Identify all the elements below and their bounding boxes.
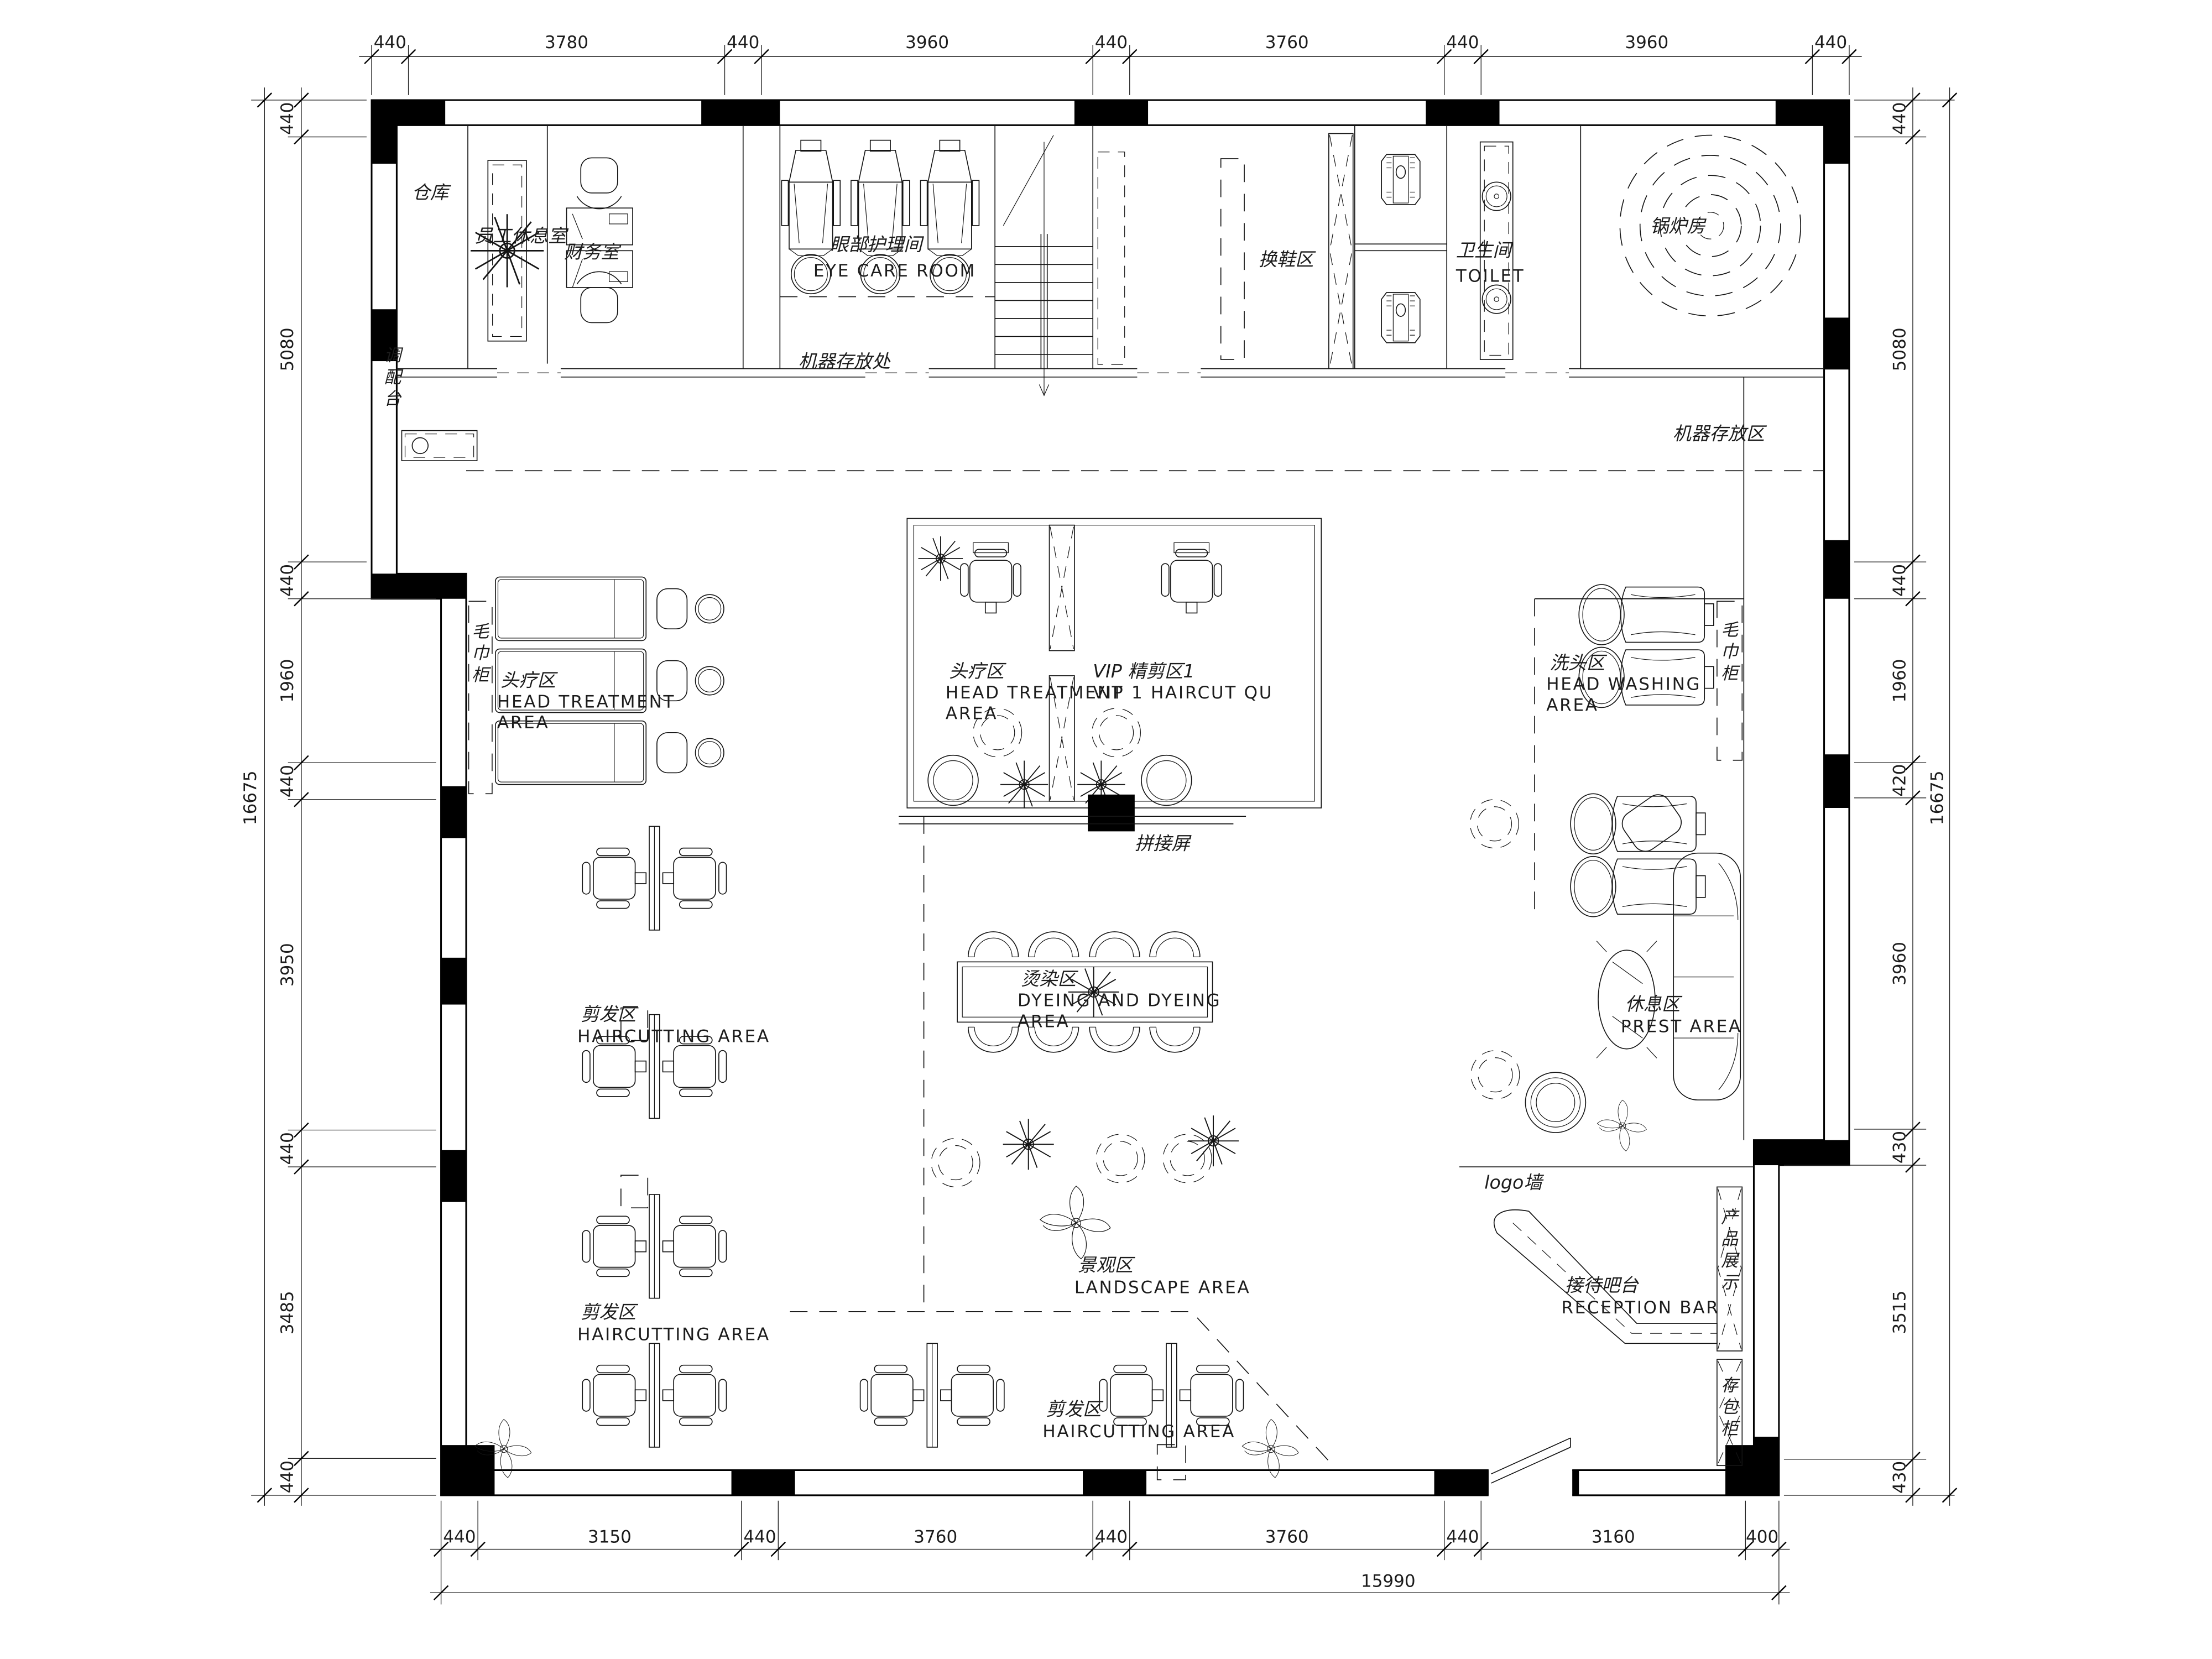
office-chair-icon bbox=[577, 272, 621, 322]
plan-group: 仓库 员工休息室 财务室 调配台 眼部护理间 EYE CARE ROOM 机器存… bbox=[241, 33, 1957, 1604]
tree-icon bbox=[1242, 1420, 1298, 1478]
head-treatment-center-cn: 头疗区 bbox=[949, 660, 1007, 682]
hatched-divider bbox=[1050, 525, 1074, 801]
dim-top-3: 3960 bbox=[905, 33, 949, 53]
dim-bottom-8: 400 bbox=[1746, 1527, 1778, 1547]
head-washing-label-en1: HEAD WASHING bbox=[1546, 675, 1701, 695]
dim-right-7: 3515 bbox=[1890, 1291, 1910, 1334]
dim-bottom-4: 440 bbox=[1095, 1527, 1128, 1547]
flower-plant-icon bbox=[1040, 1186, 1110, 1259]
dyeing-label-en1: DYEING AND DYEING bbox=[1018, 991, 1221, 1011]
wash-unit-icon bbox=[1571, 794, 1705, 854]
styling-station bbox=[582, 1194, 726, 1298]
dyeing-label-cn: 烫染区 bbox=[1021, 968, 1079, 990]
vip-label-cn: VIP 精剪区1 bbox=[1093, 660, 1194, 682]
boiler-room: 锅炉房 bbox=[1620, 135, 1801, 316]
splice-screen-label: 拼接屏 bbox=[1135, 833, 1192, 854]
dyeing-label-en2: AREA bbox=[1018, 1011, 1070, 1031]
stool-dashed-icon bbox=[1470, 800, 1519, 848]
dim-bottom-total: 15990 bbox=[1361, 1572, 1416, 1592]
rest-area: 休息区 PREST AREA bbox=[1470, 790, 1742, 1151]
office-chair-icon bbox=[577, 158, 621, 208]
door-openings bbox=[497, 364, 1569, 382]
dim-bottom-0: 440 bbox=[443, 1527, 476, 1547]
machine-storage-spot-label: 机器存放处 bbox=[799, 351, 891, 372]
head-washing-label-cn: 洗头区 bbox=[1550, 652, 1608, 674]
corner-stool bbox=[928, 755, 978, 806]
chair-icon bbox=[1089, 1027, 1140, 1052]
dim-left-7: 3485 bbox=[278, 1291, 298, 1334]
dim-top-2: 440 bbox=[727, 33, 759, 53]
shoe-change-label: 换鞋区 bbox=[1259, 249, 1317, 270]
dim-top-4: 440 bbox=[1095, 33, 1128, 53]
warehouse-room: 仓库 bbox=[412, 182, 451, 204]
staff-lounge-room: 员工休息室 bbox=[471, 160, 569, 341]
towel-cabinet-label: 毛巾柜 bbox=[472, 622, 492, 685]
squat-toilet-icon bbox=[1381, 293, 1420, 343]
dim-right-8: 430 bbox=[1890, 1461, 1910, 1494]
dim-top-7: 3960 bbox=[1625, 33, 1668, 53]
haircutting-label-en: HAIRCUTTING AREA bbox=[1042, 1422, 1235, 1442]
chair-icon bbox=[1150, 932, 1200, 957]
reception-label-cn: 接待吧台 bbox=[1565, 1275, 1640, 1296]
dim-left-total: 16675 bbox=[241, 771, 260, 826]
dim-left-8: 440 bbox=[278, 1460, 298, 1493]
chair-icon bbox=[968, 1027, 1019, 1052]
landscape-area: 景观区 LANDSCAPE AREA bbox=[931, 1115, 1250, 1297]
dim-right-6: 430 bbox=[1890, 1131, 1910, 1164]
dimension-top: 440 3780 440 3960 440 3760 440 3960 440 bbox=[359, 33, 1861, 95]
shoe-change-area: 换鞋区 bbox=[1221, 134, 1353, 369]
column-dashed bbox=[621, 1175, 648, 1208]
eye-care-label-cn: 眼部护理间 bbox=[830, 233, 924, 255]
head-washing-label-en2: AREA bbox=[1546, 695, 1598, 715]
corner-stool bbox=[1141, 755, 1192, 806]
dim-bottom-2: 440 bbox=[743, 1527, 776, 1547]
dim-left-5: 3950 bbox=[278, 943, 298, 987]
squat-toilet-icon bbox=[1381, 154, 1420, 205]
column-dashed bbox=[1157, 1444, 1186, 1480]
vip-label-en: VIP 1 HAIRCUT QU bbox=[1093, 683, 1273, 703]
haircutting-label-cn: 剪发区 bbox=[1046, 1398, 1104, 1420]
head-treatment-label-en1: HEAD TREATMENT bbox=[497, 692, 675, 712]
head-washing-area: 毛巾柜 洗头区 HEAD WASHING AREA bbox=[1546, 585, 1742, 917]
basin-icon bbox=[1483, 182, 1511, 210]
plant-icon bbox=[1188, 1115, 1239, 1166]
wash-unit-icon bbox=[1579, 585, 1714, 645]
shrub-icon bbox=[931, 1139, 980, 1187]
dim-top-6: 440 bbox=[1446, 33, 1479, 53]
stool-dashed-icon bbox=[1092, 708, 1141, 757]
mixing-counter: 调配台 bbox=[384, 346, 477, 461]
dimension-left: 440 5080 440 1960 440 3950 440 3485 440 … bbox=[241, 87, 436, 1506]
dim-top-1: 3780 bbox=[545, 33, 588, 53]
mixing-counter-label: 调配台 bbox=[384, 346, 403, 409]
toilet-label-en: TOILET bbox=[1455, 266, 1525, 286]
treatment-bed-icon bbox=[495, 577, 724, 640]
dim-bottom-3: 3760 bbox=[914, 1527, 957, 1547]
rest-label-en: PREST AREA bbox=[1621, 1016, 1742, 1036]
dim-top-5: 3760 bbox=[1265, 33, 1309, 53]
styling-chair-icon bbox=[1161, 549, 1222, 613]
haircutting-label-en: HAIRCUTTING AREA bbox=[577, 1324, 770, 1344]
wash-unit-icon bbox=[1571, 857, 1705, 917]
eye-care-room: 眼部护理间 EYE CARE ROOM 机器存放处 bbox=[781, 140, 979, 373]
boiler-label: 锅炉房 bbox=[1650, 215, 1707, 237]
finance-label: 财务室 bbox=[564, 241, 622, 263]
chair-icon bbox=[968, 932, 1019, 957]
landscape-label-en: LANDSCAPE AREA bbox=[1074, 1278, 1251, 1298]
splice-screen: 拼接屏 bbox=[899, 816, 1246, 854]
styling-station bbox=[860, 1343, 1004, 1447]
haircutting-area-3: 剪发区 HAIRCUTTING AREA bbox=[860, 1343, 1244, 1480]
display-cabinet-label: 产品展示 bbox=[1721, 1207, 1740, 1292]
staircase bbox=[995, 135, 1125, 396]
eye-care-label-en: EYE CARE ROOM bbox=[813, 261, 976, 281]
dim-right-total: 16675 bbox=[1927, 771, 1947, 826]
landscape-label-cn: 景观区 bbox=[1078, 1254, 1136, 1276]
plant-icon bbox=[1003, 1119, 1054, 1170]
dim-left-4: 440 bbox=[278, 765, 298, 797]
plant-icon bbox=[1597, 1100, 1646, 1151]
round-table-icon bbox=[1525, 1072, 1585, 1133]
sofa-icon bbox=[1673, 853, 1740, 1100]
logo-wall-label: logo墙 bbox=[1484, 1171, 1544, 1193]
dyeing-area: 烫染区 DYEING AND DYEING AREA bbox=[957, 932, 1221, 1052]
center-rooms: 头疗区 HEAD TREATMENT AREA VIP 精剪区1 VIP 1 H… bbox=[907, 519, 1321, 832]
dimension-right: 440 5080 440 1960 420 3960 430 3515 430 … bbox=[1784, 87, 1957, 1506]
shoe-cabinet bbox=[1329, 134, 1353, 369]
rest-label-cn: 休息区 bbox=[1625, 993, 1683, 1015]
machine-storage-area-label: 机器存放区 bbox=[1673, 422, 1767, 444]
display-cabinet: 产品展示 bbox=[1717, 1187, 1742, 1351]
haircutting-area-2: 剪发区 HAIRCUTTING AREA bbox=[577, 1175, 770, 1447]
shrub-icon bbox=[1163, 1134, 1212, 1183]
dim-left-2: 440 bbox=[278, 564, 298, 597]
dim-bottom-1: 3150 bbox=[588, 1527, 632, 1547]
styling-chair-icon bbox=[961, 549, 1021, 613]
dim-left-1: 5080 bbox=[278, 327, 298, 371]
dim-left-0: 440 bbox=[278, 102, 298, 135]
dim-bottom-5: 3760 bbox=[1265, 1527, 1309, 1547]
basin-icon bbox=[1483, 285, 1511, 313]
reception-label-en: RECEPTION BAR bbox=[1561, 1298, 1719, 1318]
dim-top-0: 440 bbox=[374, 33, 406, 53]
head-treatment-label-en2: AREA bbox=[497, 713, 549, 733]
styling-station bbox=[582, 826, 726, 930]
head-treatment-center-en2: AREA bbox=[946, 704, 998, 724]
dim-bottom-7: 3160 bbox=[1592, 1527, 1635, 1547]
haircutting-label-cn: 剪发区 bbox=[581, 1003, 639, 1025]
stool-dashed-icon bbox=[1471, 1051, 1520, 1099]
chair-icon bbox=[1150, 1027, 1200, 1052]
dim-right-5: 3960 bbox=[1890, 942, 1910, 985]
lounge-chair-icon bbox=[1618, 790, 1686, 856]
chair-icon bbox=[1089, 932, 1140, 957]
plant-icon bbox=[919, 536, 963, 581]
dim-right-1: 5080 bbox=[1890, 327, 1910, 371]
finance-room: 财务室 bbox=[564, 158, 633, 322]
entrance-door bbox=[1482, 1438, 1579, 1498]
dim-left-3: 1960 bbox=[278, 659, 298, 703]
plant-icon bbox=[471, 214, 544, 287]
dim-bottom-6: 440 bbox=[1446, 1527, 1479, 1547]
dim-left-6: 440 bbox=[278, 1132, 298, 1165]
floor-plan-svg: 仓库 员工休息室 财务室 调配台 眼部护理间 EYE CARE ROOM 机器存… bbox=[0, 0, 2212, 1659]
styling-station bbox=[582, 1343, 726, 1447]
towel-cabinet-right-label: 毛巾柜 bbox=[1721, 620, 1741, 684]
dim-right-4: 420 bbox=[1890, 764, 1910, 796]
haircutting-label-cn: 剪发区 bbox=[581, 1301, 639, 1323]
warehouse-label: 仓库 bbox=[412, 182, 451, 204]
toilet-room: 卫生间 TOILET bbox=[1355, 142, 1525, 359]
shrub-icon bbox=[1096, 1134, 1145, 1183]
head-treatment-label-cn: 头疗区 bbox=[500, 670, 559, 691]
dim-top-8: 440 bbox=[1814, 33, 1847, 53]
staff-lounge-label: 员工休息室 bbox=[474, 225, 569, 247]
dim-right-2: 440 bbox=[1890, 564, 1910, 597]
dimension-bottom: 440 3150 440 3760 440 3760 440 3160 400 … bbox=[430, 1501, 1790, 1605]
head-treatment-left: 毛巾柜 头疗区 HEAD TREATMENT AREA bbox=[469, 577, 724, 794]
dim-right-0: 440 bbox=[1890, 102, 1910, 135]
floor-plan-canvas: 仓库 员工休息室 财务室 调配台 眼部护理间 EYE CARE ROOM 机器存… bbox=[0, 0, 2212, 1659]
haircutting-area-1: 剪发区 HAIRCUTTING AREA bbox=[577, 826, 770, 1118]
dim-right-3: 1960 bbox=[1890, 659, 1910, 703]
haircutting-label-en: HAIRCUTTING AREA bbox=[577, 1027, 770, 1047]
chair-icon bbox=[1029, 932, 1079, 957]
bag-locker-label: 存包柜 bbox=[1721, 1376, 1741, 1439]
